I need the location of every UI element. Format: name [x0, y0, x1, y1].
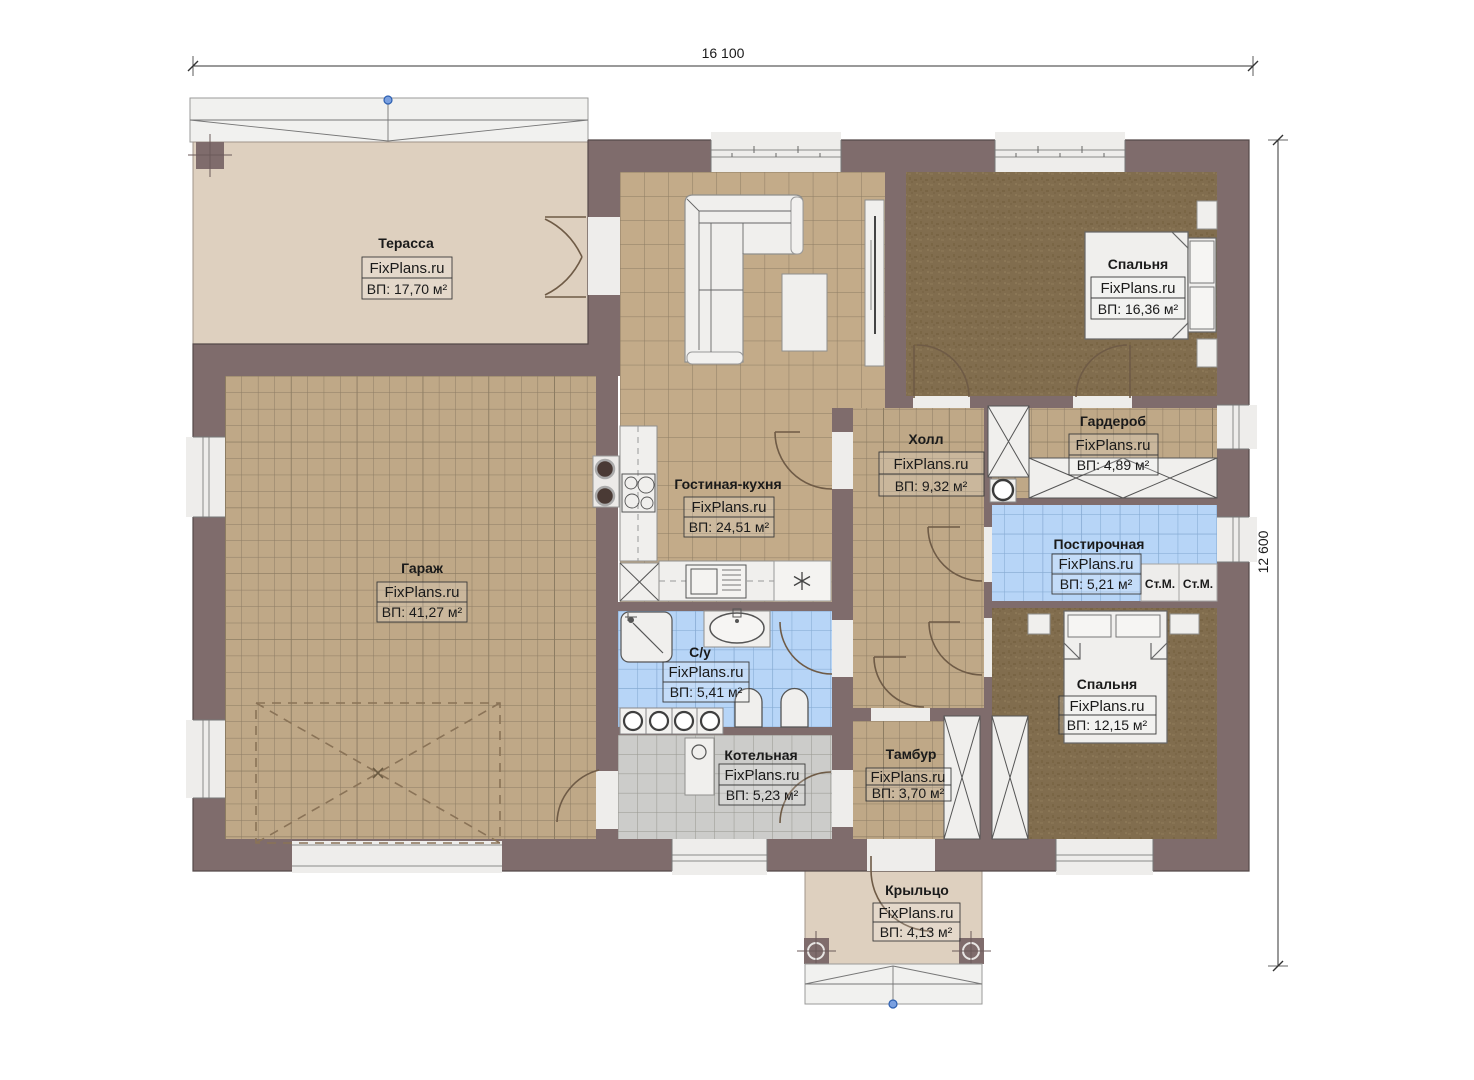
- svg-text:Ст.М.: Ст.М.: [1145, 577, 1175, 591]
- svg-text:Гостиная-кухня: Гостиная-кухня: [674, 476, 781, 492]
- svg-text:ВП: 9,32 м²: ВП: 9,32 м²: [895, 478, 968, 494]
- svg-text:FixPlans.ru: FixPlans.ru: [384, 584, 459, 601]
- svg-text:FixPlans.ru: FixPlans.ru: [724, 767, 799, 784]
- svg-text:Тамбур: Тамбур: [886, 746, 937, 762]
- svg-text:FixPlans.ru: FixPlans.ru: [1075, 437, 1150, 454]
- svg-text:FixPlans.ru: FixPlans.ru: [1069, 698, 1144, 715]
- svg-text:16 100: 16 100: [702, 45, 745, 61]
- svg-text:FixPlans.ru: FixPlans.ru: [1100, 280, 1175, 297]
- svg-text:FixPlans.ru: FixPlans.ru: [870, 769, 945, 786]
- svg-text:FixPlans.ru: FixPlans.ru: [369, 260, 444, 277]
- svg-text:ВП: 5,21 м²: ВП: 5,21 м²: [1060, 576, 1133, 592]
- svg-text:ВП: 16,36 м²: ВП: 16,36 м²: [1098, 301, 1179, 317]
- svg-text:ВП: 12,15 м²: ВП: 12,15 м²: [1067, 717, 1148, 733]
- svg-text:ВП: 3,70 м²: ВП: 3,70 м²: [872, 785, 945, 801]
- svg-text:Котельная: Котельная: [724, 747, 797, 763]
- svg-text:ВП: 41,27 м²: ВП: 41,27 м²: [382, 604, 463, 620]
- svg-text:Постирочная: Постирочная: [1054, 536, 1145, 552]
- svg-text:ВП: 4,13 м²: ВП: 4,13 м²: [880, 924, 953, 940]
- svg-text:12 600: 12 600: [1255, 530, 1271, 573]
- svg-text:Спальня: Спальня: [1077, 676, 1137, 692]
- svg-text:ВП: 5,41 м²: ВП: 5,41 м²: [670, 684, 743, 700]
- svg-text:FixPlans.ru: FixPlans.ru: [878, 905, 953, 922]
- svg-text:ВП: 24,51 м²: ВП: 24,51 м²: [689, 519, 770, 535]
- svg-text:Холл: Холл: [908, 431, 943, 447]
- svg-text:Терасса: Терасса: [378, 235, 434, 251]
- svg-text:FixPlans.ru: FixPlans.ru: [668, 664, 743, 681]
- svg-text:ВП: 17,70 м²: ВП: 17,70 м²: [367, 281, 448, 297]
- svg-text:Гараж: Гараж: [401, 560, 444, 576]
- svg-text:Крыльцо: Крыльцо: [885, 882, 949, 898]
- svg-text:FixPlans.ru: FixPlans.ru: [893, 456, 968, 473]
- svg-text:FixPlans.ru: FixPlans.ru: [1058, 556, 1133, 573]
- svg-text:С/у: С/у: [689, 644, 711, 660]
- svg-text:Гардероб: Гардероб: [1080, 413, 1147, 429]
- svg-text:ВП: 5,23 м²: ВП: 5,23 м²: [726, 787, 799, 803]
- svg-text:Ст.М.: Ст.М.: [1183, 577, 1213, 591]
- svg-text:ВП: 4,89 м²: ВП: 4,89 м²: [1077, 457, 1150, 473]
- svg-text:FixPlans.ru: FixPlans.ru: [691, 499, 766, 516]
- svg-text:Спальня: Спальня: [1108, 256, 1168, 272]
